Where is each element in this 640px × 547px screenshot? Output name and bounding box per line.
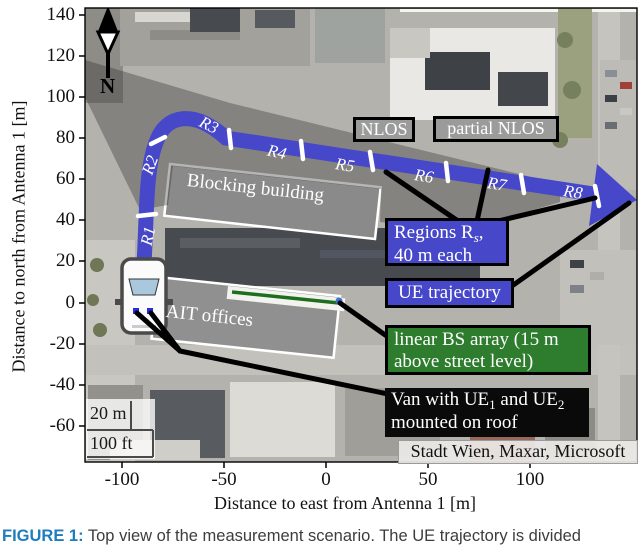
legend-van-line2: mounted on roof: [391, 412, 518, 433]
region-label-r8: R8: [562, 182, 583, 202]
y-tick-neg40: -40: [33, 375, 75, 395]
map-canvas: [0, 0, 640, 547]
nlos-badge: NLOS: [353, 117, 415, 142]
partial-nlos-text: partial NLOS: [447, 118, 544, 139]
scale-metric-label: 20 m: [90, 404, 127, 423]
legend-van: Van with UE1 and UE2 mounted on roof: [385, 388, 589, 437]
x-tick-neg100: -100: [87, 470, 157, 490]
legend-regions-comma: ,: [479, 222, 484, 243]
legend-regions-line2: 40 m each: [394, 245, 472, 266]
y-tick-60: 60: [33, 169, 75, 189]
legend-van-prefix: Van with UE: [391, 389, 489, 410]
legend-regions-text: Regions R: [394, 222, 474, 243]
y-tick-140: 140: [33, 5, 75, 25]
legend-van-sub2: 2: [558, 397, 565, 412]
y-tick-80: 80: [33, 128, 75, 148]
x-tick-100: 100: [495, 470, 565, 490]
van-windshield: [129, 279, 159, 295]
legend-ue-trajectory-text: UE trajectory: [398, 282, 501, 304]
y-tick-120: 120: [33, 46, 75, 66]
y-axis-label: Distance to north from Antenna 1 [m]: [9, 17, 30, 457]
y-tick-20: 20: [33, 251, 75, 271]
figure-caption-tag: FIGURE 1:: [2, 527, 84, 545]
map-attribution: Stadt Wien, Maxar, Microsoft: [398, 440, 638, 464]
region-label-r4: R4: [266, 142, 288, 163]
partial-nlos-badge: partial NLOS: [433, 116, 559, 142]
nlos-text: NLOS: [360, 119, 407, 140]
legend-regions: Regions Rs, 40 m each: [385, 218, 509, 266]
figure-1-measurement-scenario: 140 120 100 80 60 40 20 0 -20 -40 -60 -1…: [0, 0, 640, 547]
y-axis-tick-marks: [79, 15, 85, 426]
x-tick-neg50: -50: [189, 470, 259, 490]
region-label-r1: R1: [138, 225, 159, 247]
y-tick-40: 40: [33, 210, 75, 230]
legend-ue-trajectory: UE trajectory: [385, 278, 514, 308]
legend-bs-line2: above street level): [394, 351, 533, 372]
x-axis-label: Distance to east from Antenna 1 [m]: [145, 493, 545, 514]
x-tick-50: 50: [393, 470, 463, 490]
legend-bs-line1: linear BS array (15 m: [394, 329, 559, 350]
figure-caption: FIGURE 1: Top view of the measurement sc…: [2, 526, 638, 546]
legend-bs-array: linear BS array (15 m above street level…: [385, 325, 591, 375]
region-label-r6: R6: [413, 166, 434, 186]
x-tick-0: 0: [291, 470, 361, 490]
region-label-r5: R5: [334, 155, 355, 175]
y-tick-neg60: -60: [33, 416, 75, 436]
north-label: N: [100, 74, 115, 99]
figure-caption-text: Top view of the measurement scenario. Th…: [84, 527, 581, 545]
region-label-r7: R7: [486, 174, 507, 194]
legend-van-mid: and UE: [496, 389, 558, 410]
scale-imperial-label: 100 ft: [90, 434, 133, 453]
y-tick-neg20: -20: [33, 334, 75, 354]
y-tick-0: 0: [33, 293, 75, 313]
y-tick-100: 100: [33, 87, 75, 107]
